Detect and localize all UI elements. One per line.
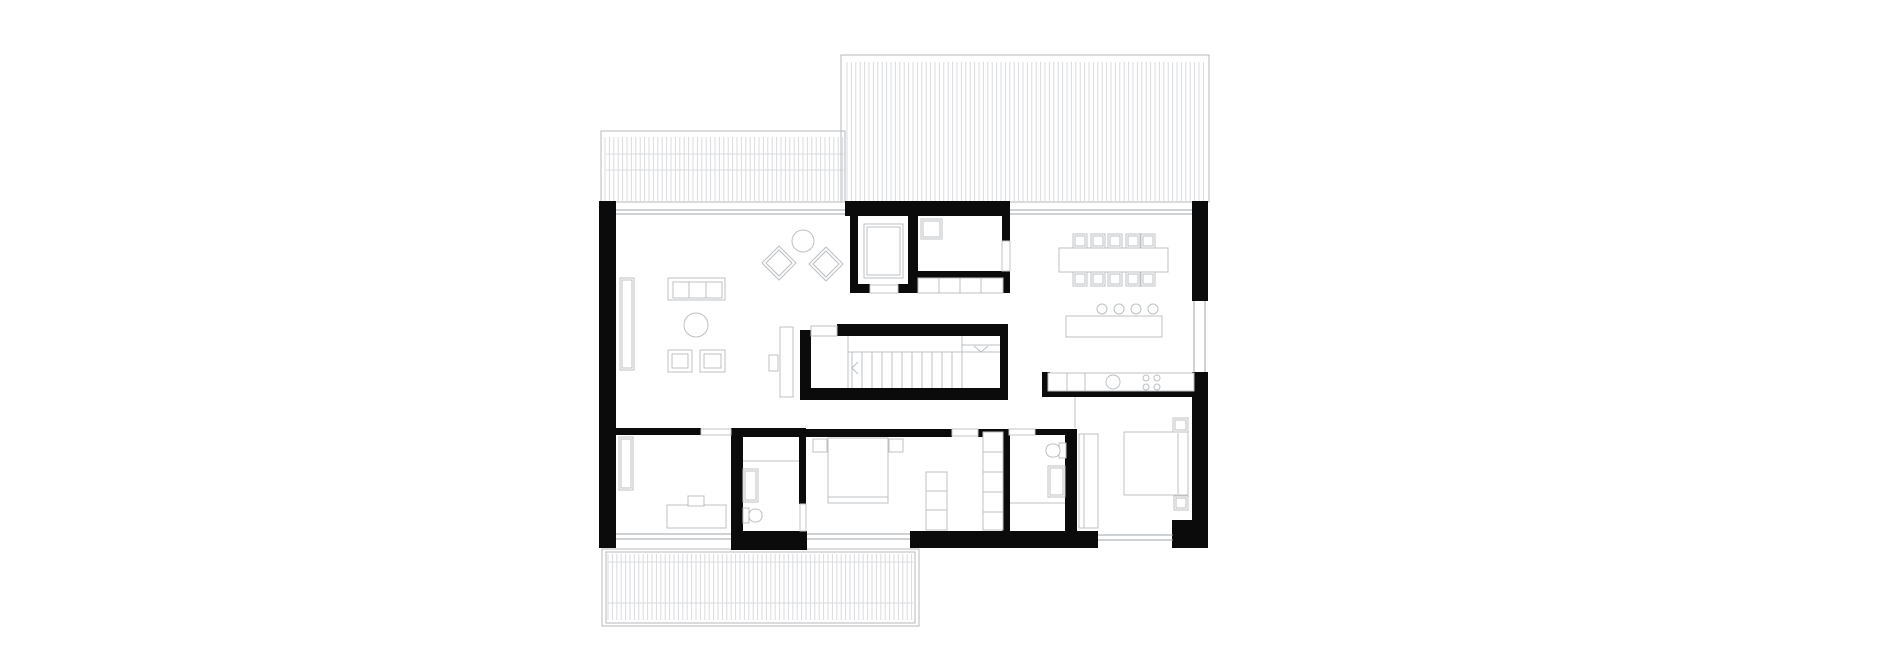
office-chair xyxy=(688,496,704,506)
wc-washbasin xyxy=(921,219,942,239)
deck-top-left-border-0 xyxy=(601,131,845,202)
bar-stool-2 xyxy=(1114,304,1124,314)
deck-top-right-border-0 xyxy=(841,55,1209,202)
opening-core-right xyxy=(1002,241,1010,271)
stair-landing-notch xyxy=(811,326,837,336)
wall-core-top xyxy=(845,201,1010,216)
window-living-top xyxy=(616,210,845,214)
window-kitchen-right xyxy=(1194,301,1205,372)
stair-side-cabinet xyxy=(780,327,793,397)
wall-core-right-upper xyxy=(1002,216,1010,241)
wall-core-closet-back xyxy=(918,271,1003,278)
wall-kitchen-counter xyxy=(1042,391,1194,397)
window-master-bottom xyxy=(807,534,910,539)
wall-bath1-top xyxy=(743,428,805,437)
master-dresser xyxy=(926,472,947,530)
wall-stair-right xyxy=(1000,324,1008,400)
bar-stool-1 xyxy=(1097,304,1107,314)
sofa-seat-3 xyxy=(706,282,722,298)
stair-direction-chevron-right xyxy=(974,346,988,352)
wall-core-door-jamb-right xyxy=(898,284,918,293)
window-bed2-bottom xyxy=(1098,535,1173,540)
wall-core-door-jamb-left xyxy=(850,284,870,293)
door-core-wc xyxy=(870,285,898,293)
dining-table xyxy=(1059,248,1168,272)
deck-bottom-border-0 xyxy=(602,549,919,626)
lounge-side-table xyxy=(792,230,814,252)
hob-burner-4 xyxy=(1154,384,1160,390)
bath2-shower xyxy=(1048,466,1065,497)
bath2-toilet-bowl xyxy=(1046,444,1060,457)
bath1-toilet-tank xyxy=(743,508,749,523)
door-office xyxy=(701,429,731,435)
hob-burner-1 xyxy=(1143,375,1149,381)
master-bed xyxy=(828,438,888,503)
floor-plan-drawing xyxy=(0,0,1880,662)
bedroom2-wardrobe xyxy=(1079,434,1098,528)
deck-top-left xyxy=(601,131,845,202)
window-dining-top xyxy=(1010,210,1192,214)
kitchen-island xyxy=(1066,316,1162,337)
wall-core-middle xyxy=(908,216,918,293)
lounge-chair-2 xyxy=(809,247,843,281)
bath1-toilet-bowl xyxy=(749,509,762,522)
stair-side-table xyxy=(769,355,778,371)
sofa-seat-1 xyxy=(673,282,689,298)
wall-bath2-bed2 xyxy=(1065,429,1077,533)
master-wardrobe xyxy=(983,432,1003,530)
floor-plan-canvas xyxy=(0,0,1880,662)
window-office-bottom xyxy=(616,534,731,539)
hob-burner-2 xyxy=(1154,375,1160,381)
wall-bottom-center-right xyxy=(910,531,1098,548)
deck-top-right xyxy=(841,55,1209,202)
kitchen-counter xyxy=(1048,373,1194,391)
wall-stair-top xyxy=(837,324,1008,336)
wall-office-bath1 xyxy=(731,428,743,538)
door-bath2 xyxy=(1009,429,1035,435)
wall-master-top-left xyxy=(806,429,952,437)
wall-bath1-master xyxy=(799,428,806,504)
wall-bedrooms-top-left xyxy=(615,428,701,435)
wall-exterior-bottom-right-corner xyxy=(1172,520,1196,548)
lounge-chair-1 xyxy=(762,246,796,280)
bar-stool-3 xyxy=(1131,304,1141,314)
door-bath1 xyxy=(800,504,806,531)
wall-exterior-right-upper xyxy=(1192,201,1208,301)
sofa-seat-2 xyxy=(689,282,706,298)
wall-stair-bottom xyxy=(800,388,1008,400)
wall-exterior-left xyxy=(599,201,616,548)
bar-stool-4 xyxy=(1148,304,1158,314)
master-nightstand-right xyxy=(889,439,903,452)
hob-burner-3 xyxy=(1143,384,1149,390)
stair-direction-chevron-left xyxy=(852,362,858,374)
office-desk xyxy=(667,505,726,528)
coffee-table xyxy=(684,313,708,337)
door-master-bedroom xyxy=(952,429,978,436)
deck-bottom xyxy=(602,549,919,626)
master-nightstand-left xyxy=(813,439,827,452)
kitchen-sink xyxy=(1106,375,1120,389)
elevator-cab xyxy=(864,224,903,278)
layer-furniture xyxy=(619,219,1194,530)
wall-core-left xyxy=(850,206,858,293)
